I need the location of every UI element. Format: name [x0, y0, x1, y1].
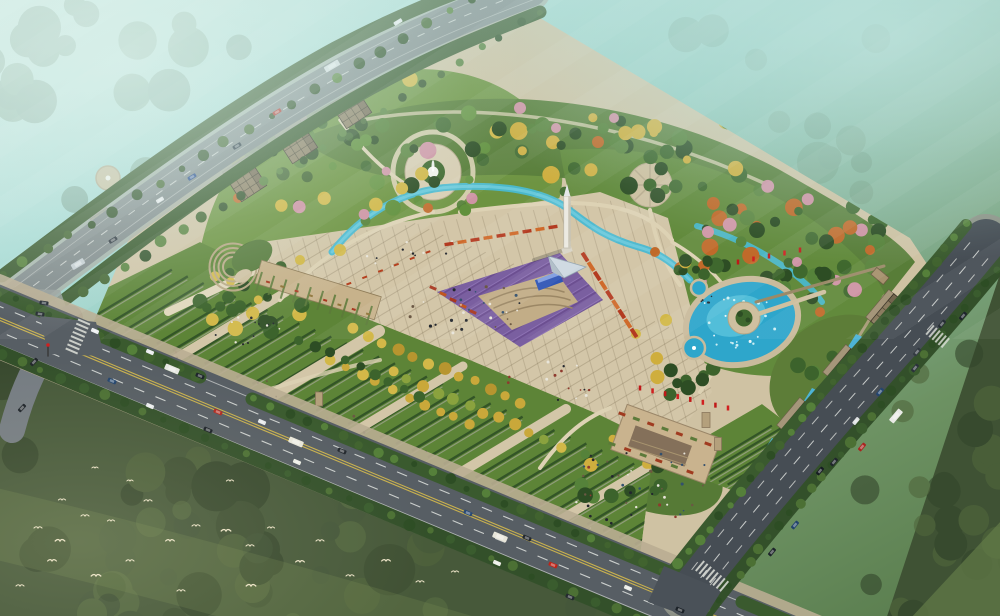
gate-tower-road	[316, 392, 323, 406]
car	[791, 520, 800, 529]
pond-pool-north	[691, 280, 707, 296]
scene-canvas	[0, 0, 1000, 616]
car	[768, 547, 777, 556]
obelisk-column-shade	[568, 196, 571, 248]
mini-plaza-fountain	[106, 176, 111, 181]
sunken-tower-2	[715, 438, 722, 451]
sunken-tower-1	[702, 413, 710, 428]
traffic-light	[46, 343, 50, 347]
pond-fountain-spray	[692, 346, 696, 350]
fountain-jet	[432, 160, 435, 172]
park-aerial-rendering	[0, 0, 1000, 616]
car	[858, 442, 867, 451]
